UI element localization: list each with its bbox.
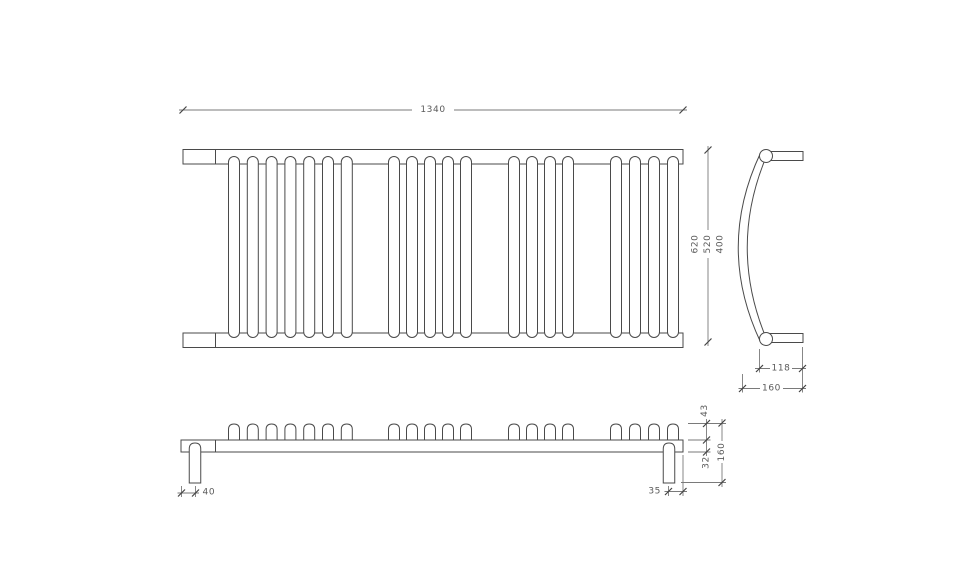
plan-tube: [425, 157, 436, 338]
front-stub: [611, 424, 622, 441]
plan-tube: [266, 157, 277, 338]
plan-tube: [389, 157, 400, 338]
towel-rail-technical-drawing: 1340 620 520 400: [0, 0, 960, 585]
plan-view: 1340 620 520 400: [179, 104, 726, 348]
plan-tube: [668, 157, 679, 338]
plan-height-dim-label-400: 400: [716, 235, 726, 254]
front-left-leg: [189, 443, 201, 483]
front-tube-height-label: 43: [700, 404, 710, 417]
plan-tube: [229, 157, 240, 338]
plan-tube: [341, 157, 352, 338]
front-stub: [425, 424, 436, 441]
front-stub: [527, 424, 538, 441]
front-stub: [247, 424, 258, 441]
plan-tube: [443, 157, 454, 338]
front-depth-dim-label: 160: [717, 443, 727, 462]
front-left-dim-label: 40: [203, 488, 216, 498]
front-stub: [229, 424, 240, 441]
plan-tubes: [229, 157, 679, 338]
side-bottom-joint: [760, 333, 773, 346]
front-bar: [181, 440, 683, 452]
plan-tube: [461, 157, 472, 338]
side-depth-dimensions: 118 160: [739, 347, 807, 394]
plan-width-dimension: 1340: [179, 104, 687, 116]
front-stub: [266, 424, 277, 441]
front-right-dim-label: 35: [648, 487, 661, 497]
front-stub: [461, 424, 472, 441]
plan-tube: [509, 157, 520, 338]
plan-width-dim-label: 1340: [420, 105, 445, 115]
side-curved-tube-inner: [747, 156, 766, 339]
plan-tube: [563, 157, 574, 338]
side-bottom-wall-rail: [769, 334, 804, 343]
plan-tube: [285, 157, 296, 338]
front-stubs: [229, 424, 679, 441]
front-stub: [545, 424, 556, 441]
front-depth-dimensions: 43 32 160: [681, 404, 728, 487]
plan-height-dim-label-520: 520: [703, 235, 713, 254]
side-upper-dim-label: 118: [772, 364, 791, 374]
front-stub: [323, 424, 334, 441]
front-stub: [285, 424, 296, 441]
front-stub: [443, 424, 454, 441]
side-top-wall-rail: [769, 152, 804, 161]
front-stub: [563, 424, 574, 441]
plan-tube: [649, 157, 660, 338]
front-stub: [509, 424, 520, 441]
plan-height-dim-label-620: 620: [691, 235, 701, 254]
front-stub: [304, 424, 315, 441]
side-lower-dim-label: 160: [762, 384, 781, 394]
front-stub: [389, 424, 400, 441]
front-stub: [630, 424, 641, 441]
plan-tube: [323, 157, 334, 338]
plan-tube: [545, 157, 556, 338]
front-rail-thickness-label: 32: [702, 456, 712, 469]
front-stub: [341, 424, 352, 441]
front-view: 40 35 43 32 160: [178, 404, 728, 497]
plan-tube: [304, 157, 315, 338]
front-right-leg: [663, 443, 675, 483]
technical-drawing-page: 1340 620 520 400: [0, 0, 960, 585]
front-stub: [668, 424, 679, 441]
side-top-joint: [760, 150, 773, 163]
plan-tube: [247, 157, 258, 338]
plan-tube: [407, 157, 418, 338]
plan-tube: [527, 157, 538, 338]
plan-tube: [611, 157, 622, 338]
plan-tube: [630, 157, 641, 338]
side-view: 118 160: [738, 150, 806, 395]
front-stub: [649, 424, 660, 441]
front-stub: [407, 424, 418, 441]
plan-height-dimension: 620 520 400: [691, 146, 726, 346]
